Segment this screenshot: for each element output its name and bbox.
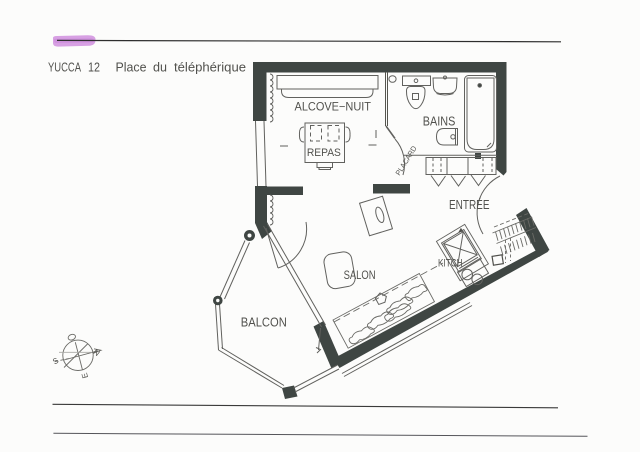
svg-text:BAINS: BAINS: [423, 114, 456, 129]
svg-text:KITCH: KITCH: [438, 258, 463, 270]
svg-text:du: du: [153, 60, 167, 75]
svg-text:téléphérique: téléphérique: [174, 60, 246, 75]
svg-text:12: 12: [88, 60, 100, 75]
svg-text:BALCON: BALCON: [241, 315, 287, 330]
svg-text:ALCOVE−NUIT: ALCOVE−NUIT: [295, 101, 372, 114]
svg-text:ENTRÉE: ENTRÉE: [449, 197, 490, 212]
svg-text:SALON: SALON: [344, 268, 376, 282]
svg-text:YUCCA: YUCCA: [48, 60, 81, 75]
svg-text:REPAS: REPAS: [307, 147, 341, 159]
svg-text:Place: Place: [116, 60, 147, 75]
